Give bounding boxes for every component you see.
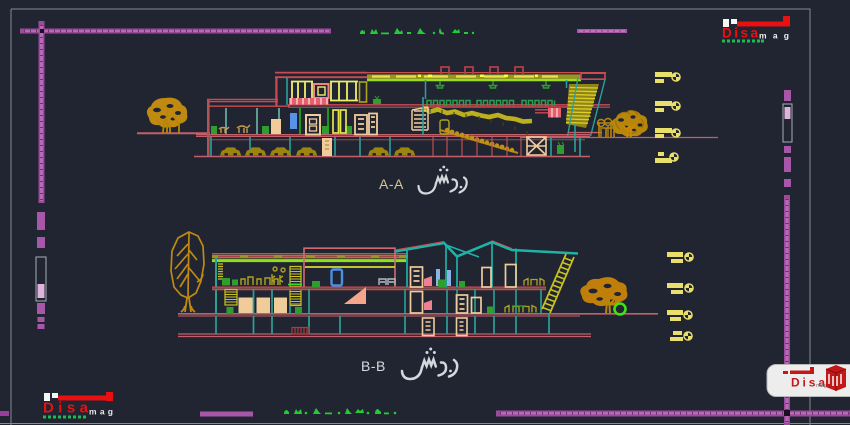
svg-text:A-A: A-A — [379, 176, 404, 192]
svg-text:mag: mag — [816, 383, 827, 389]
svg-text:mag: mag — [759, 31, 789, 41]
svg-text:Disa: Disa — [722, 26, 758, 41]
svg-text:mag: mag — [89, 407, 113, 417]
svg-text:B-B: B-B — [361, 358, 386, 374]
